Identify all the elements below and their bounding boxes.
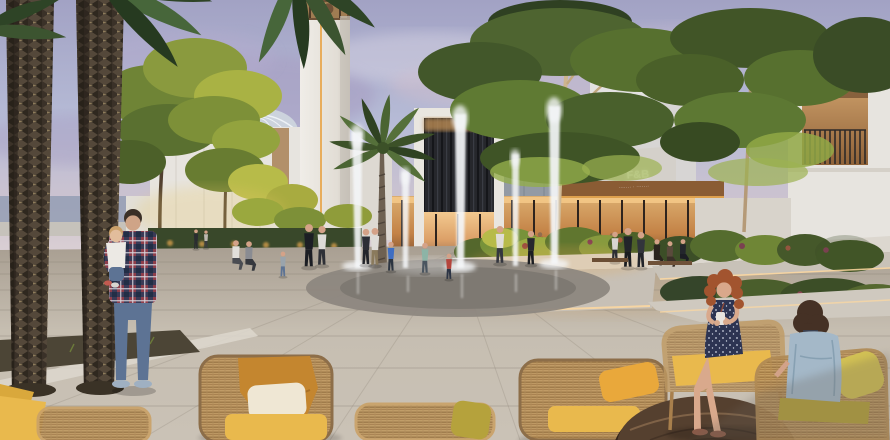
hand xyxy=(723,319,729,325)
bench[interactable] xyxy=(648,261,692,265)
jet-puff xyxy=(452,105,468,131)
jet-puff xyxy=(350,124,364,148)
hand xyxy=(714,320,720,326)
armchair-front-center[interactable] xyxy=(356,400,494,440)
baby-top xyxy=(106,242,126,269)
base-splash xyxy=(539,259,569,269)
face xyxy=(716,282,731,297)
bench[interactable] xyxy=(592,258,628,262)
shoe xyxy=(134,380,152,388)
jet-puff xyxy=(510,149,520,167)
armchair-front-left[interactable] xyxy=(200,356,332,440)
hedge xyxy=(148,228,362,250)
baby-shoe xyxy=(104,280,112,285)
baby-face xyxy=(110,230,122,242)
baby-shoe xyxy=(111,282,119,287)
jet-puff xyxy=(546,97,562,123)
plaza-render: F&B ······· · ······· xyxy=(0,0,890,440)
fountain-jet xyxy=(402,172,409,268)
baby-jeans xyxy=(109,267,124,281)
olive-cushion xyxy=(450,400,493,440)
scene-svg: F&B ······· · ······· xyxy=(0,0,890,440)
shoe xyxy=(112,380,130,388)
mist xyxy=(388,257,472,275)
wet-basin-inner xyxy=(340,267,576,309)
seat-cushion xyxy=(225,414,327,440)
fountain-jet xyxy=(512,154,519,266)
man-face xyxy=(125,215,140,230)
wicker-back xyxy=(38,408,150,440)
jet-puff xyxy=(400,167,410,185)
